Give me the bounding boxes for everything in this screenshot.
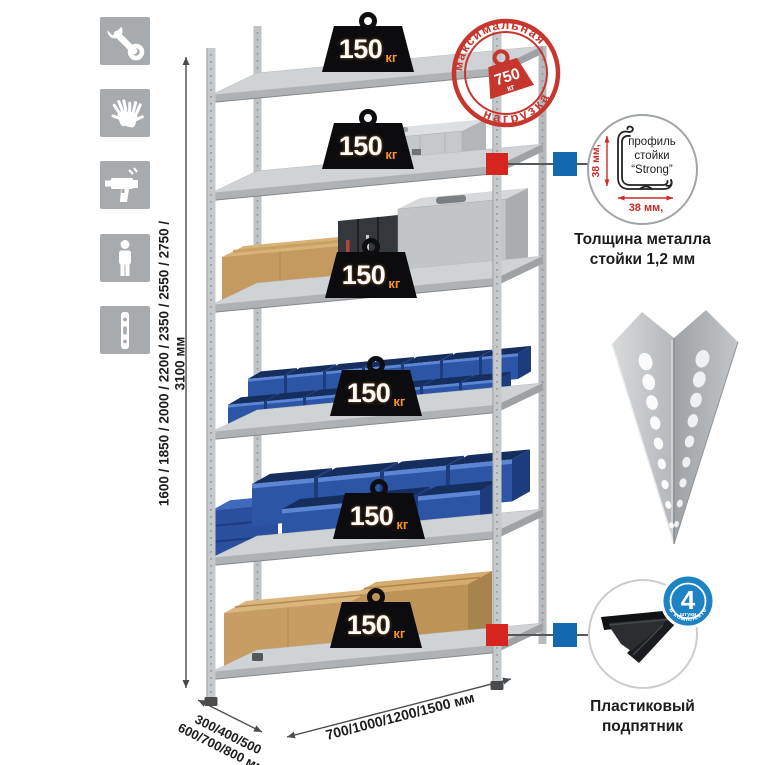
- load-unit: кг: [393, 626, 405, 641]
- weight-handle-icon: [359, 12, 377, 30]
- connector-red-square-top: [486, 153, 508, 175]
- load-unit: кг: [385, 50, 397, 65]
- load-unit: кг: [393, 394, 405, 409]
- weight-handle-icon: [367, 356, 385, 374]
- profile-caption: Толщина металла стойки 1,2 мм: [565, 230, 720, 270]
- connector-blue-square-bottom: [553, 623, 577, 647]
- wrench-icon: [100, 17, 150, 65]
- load-value: 150: [339, 131, 383, 162]
- stamp-weight-icon: 750 кг: [477, 44, 534, 99]
- weight-handle-icon: [362, 238, 380, 256]
- foot-caption-line2: подпятник: [565, 717, 720, 737]
- profile-dim-horizontal: 38 мм,: [629, 202, 664, 214]
- connector-red-square-bottom: [486, 624, 508, 646]
- height-dimension-label: 1600 / 1850 / 2000 / 2200 / 2350 / 2550 …: [156, 214, 187, 514]
- profile-label-line3: “Strong”: [631, 164, 673, 176]
- shelf-load-badge-4: 150кг: [330, 356, 422, 416]
- profile-detail-figure: 38 мм, 38 мм, профиль стойки “Strong”: [585, 112, 700, 227]
- load-value: 150: [347, 378, 391, 409]
- max-load-stamp: максимальная нагрузка 750 кг: [443, 10, 569, 136]
- profile-dim-vertical: 38 мм,: [590, 144, 602, 177]
- angle-post-figure: [598, 298, 753, 553]
- shelf-load-badge-5: 150кг: [333, 479, 425, 539]
- profile-caption-line2: стойки 1,2 мм: [565, 250, 720, 270]
- load-value: 150: [347, 610, 391, 641]
- weight-handle-icon: [370, 479, 388, 497]
- plastic-foot-back-left: [252, 653, 263, 661]
- profile-label-line2: стойки: [634, 150, 669, 162]
- shelf-load-badge-1: 150кг: [322, 12, 414, 72]
- load-value: 150: [350, 501, 394, 532]
- foot-caption: Пластиковый подпятник: [565, 697, 720, 737]
- product-infographic: 1600 / 1850 / 2000 / 2200 / 2350 / 2550 …: [0, 0, 765, 765]
- load-unit: кг: [388, 276, 400, 291]
- shelf-load-badge-2: 150кг: [322, 109, 414, 169]
- load-value: 150: [339, 34, 383, 65]
- weight-handle-icon: [367, 588, 385, 606]
- profile-label-line1: профиль: [628, 136, 676, 148]
- shelf-load-badge-6: 150кг: [330, 588, 422, 648]
- profile-labels: профиль стойки “Strong”: [628, 136, 676, 176]
- person-icon: [100, 234, 150, 282]
- gloves-icon: [100, 89, 150, 137]
- upright-profile-icon: [100, 306, 150, 354]
- profile-caption-line1: Толщина металла: [565, 230, 720, 250]
- connector-blue-square-top: [553, 152, 577, 176]
- kit-count-badge: 4 штуки в комплекте: [662, 575, 714, 627]
- kit-count-number: 4: [681, 585, 696, 615]
- weight-handle-icon: [359, 109, 377, 127]
- shelf-load-badge-3: 150кг: [325, 238, 417, 298]
- load-unit: кг: [385, 147, 397, 162]
- foot-caption-line1: Пластиковый: [565, 697, 720, 717]
- drill-icon: [100, 161, 150, 209]
- load-value: 150: [342, 260, 386, 291]
- load-unit: кг: [396, 517, 408, 532]
